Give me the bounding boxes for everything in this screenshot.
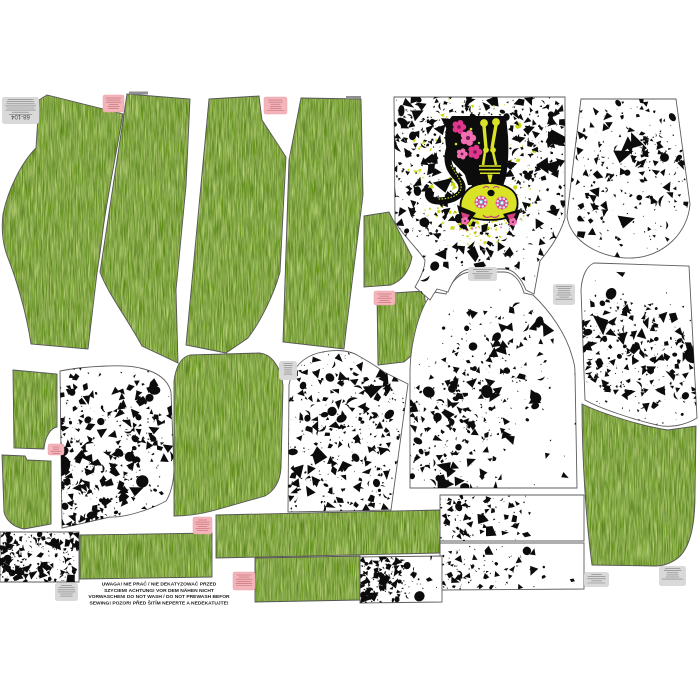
svg-text:SZYCIEM! ACHTUNG! VOR DEM NÄHE: SZYCIEM! ACHTUNG! VOR DEM NÄHEN NICHT	[104, 587, 214, 594]
svg-text:68-104: 68-104	[10, 113, 29, 119]
svg-text:VORWASCHEN! DO NOT WASH / DO N: VORWASCHEN! DO NOT WASH / DO NOT PREWASH…	[88, 594, 230, 600]
